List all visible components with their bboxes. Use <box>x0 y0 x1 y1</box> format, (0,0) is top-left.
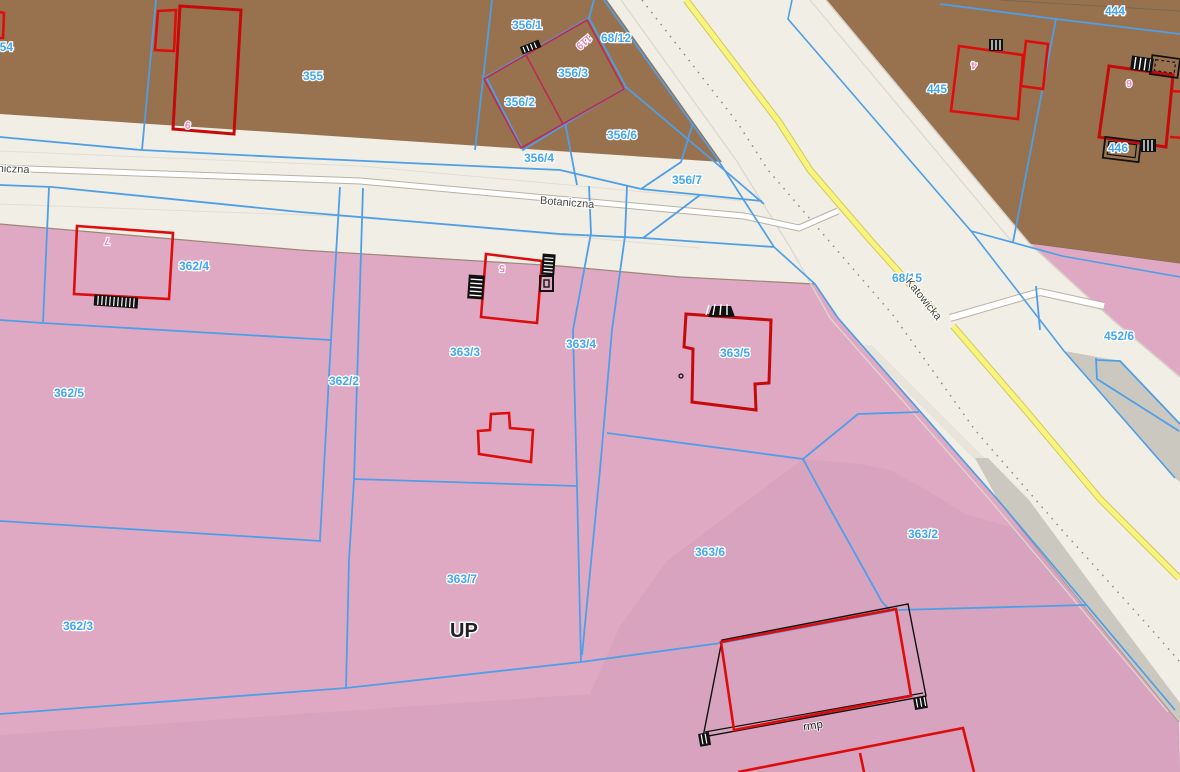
svg-text:4: 4 <box>971 59 977 71</box>
svg-text:356/1: 356/1 <box>512 18 542 32</box>
svg-text:362/4: 362/4 <box>179 259 209 273</box>
svg-text:363/6: 363/6 <box>695 545 725 559</box>
svg-text:363/5: 363/5 <box>720 346 750 360</box>
svg-text:363/7: 363/7 <box>447 572 477 586</box>
svg-text:362/3: 362/3 <box>63 619 93 633</box>
svg-text:363/2: 363/2 <box>908 527 938 541</box>
svg-text:356/6: 356/6 <box>607 128 637 142</box>
svg-text:7: 7 <box>104 235 110 247</box>
svg-text:356/2: 356/2 <box>505 95 535 109</box>
svg-text:5: 5 <box>499 262 505 274</box>
svg-text:UP: UP <box>450 620 478 642</box>
svg-text:356/3: 356/3 <box>558 66 588 80</box>
svg-text:363/3: 363/3 <box>450 345 480 359</box>
svg-text:452/6: 452/6 <box>1104 329 1134 343</box>
svg-text:6: 6 <box>1126 77 1132 89</box>
svg-text:356/7: 356/7 <box>672 173 702 187</box>
svg-text:68/12: 68/12 <box>601 31 631 45</box>
svg-text:446: 446 <box>1108 141 1128 155</box>
svg-text:363/4: 363/4 <box>566 337 596 351</box>
svg-text:362/5: 362/5 <box>54 386 84 400</box>
svg-text:362/2: 362/2 <box>329 374 359 388</box>
svg-text:444: 444 <box>1105 4 1125 18</box>
svg-text:445: 445 <box>927 82 947 96</box>
svg-text:Botaniczna: Botaniczna <box>0 162 31 176</box>
svg-text:356/4: 356/4 <box>524 151 554 165</box>
svg-text:355: 355 <box>303 69 323 83</box>
svg-text:354: 354 <box>0 40 13 54</box>
